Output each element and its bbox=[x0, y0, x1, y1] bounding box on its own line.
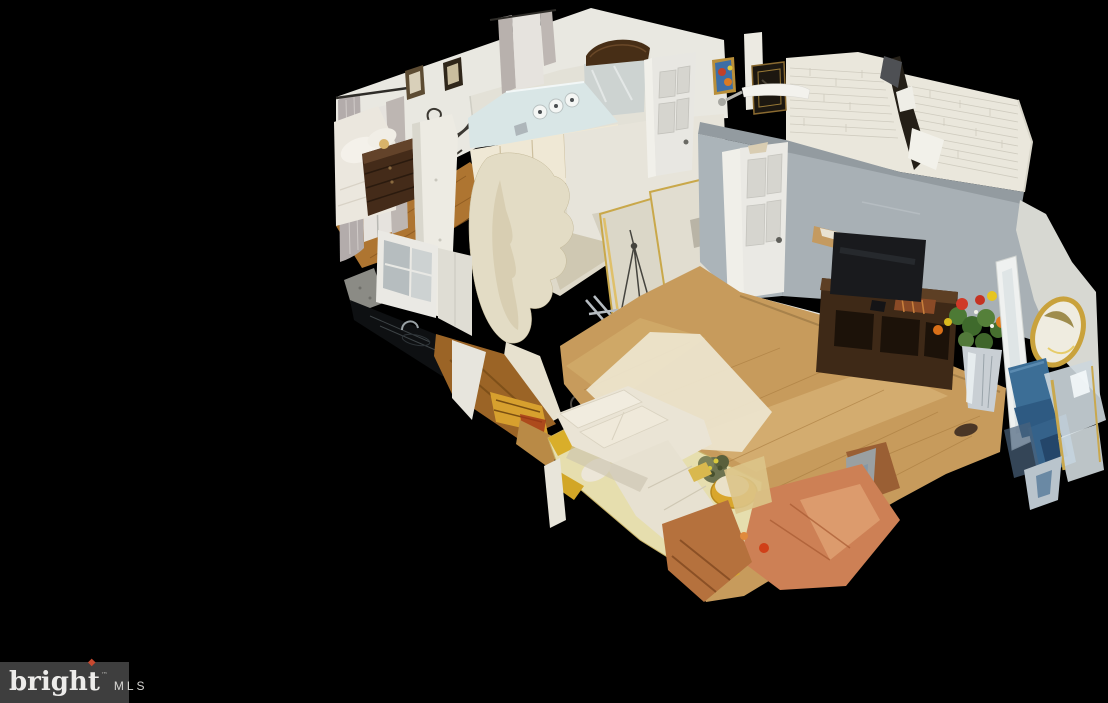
logo-trademark: ™ bbox=[101, 671, 108, 679]
hallway-door-top bbox=[644, 52, 696, 178]
dollhouse-3d-scan bbox=[0, 0, 1108, 703]
flame-icon: ◆ bbox=[88, 658, 96, 668]
hallway-door bbox=[722, 142, 788, 304]
bright-mls-logo: bright◆™ MLS bbox=[0, 662, 129, 703]
logo-mls: MLS bbox=[114, 679, 148, 693]
logo-brand-last: t◆ bbox=[88, 664, 100, 700]
listing-photo: bright◆™ MLS bbox=[0, 0, 1108, 703]
framed-art-colorful bbox=[712, 57, 736, 95]
logo-brand-prefix: brigh bbox=[9, 664, 88, 700]
